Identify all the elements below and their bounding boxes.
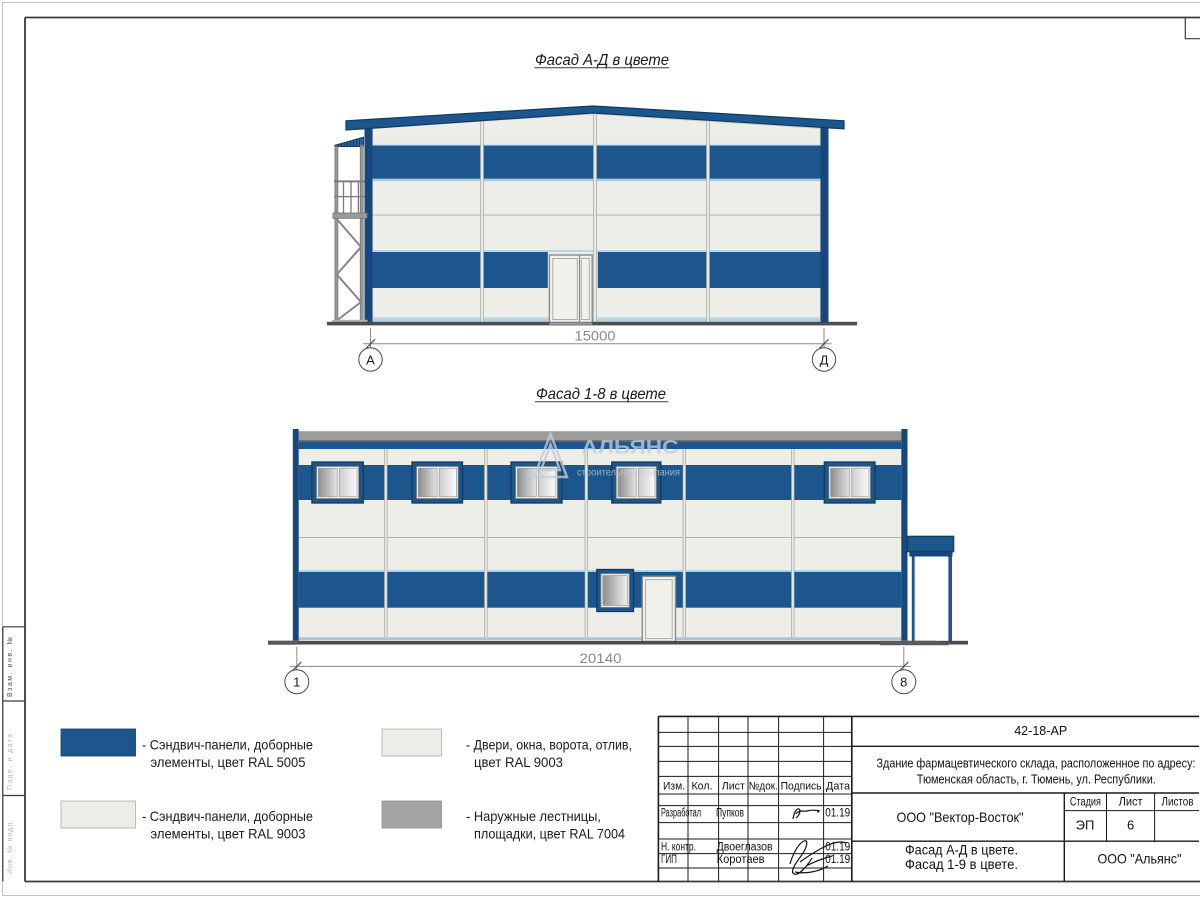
svg-text:Пупков: Пупков [716, 808, 744, 820]
svg-text:Листов: Листов [1162, 797, 1194, 809]
svg-text:01.19: 01.19 [825, 842, 850, 854]
svg-text:ООО "Альянс": ООО "Альянс" [1098, 850, 1182, 866]
svg-text:Лист: Лист [722, 781, 745, 793]
svg-text:элементы, цвет RAL 9003: элементы, цвет RAL 9003 [151, 826, 306, 842]
svg-text:Стадия: Стадия [1070, 797, 1101, 809]
svg-text:Коротаев: Коротаев [717, 854, 765, 866]
svg-text:Фасад А-Д в цвете.: Фасад А-Д в цвете. [905, 841, 1018, 857]
svg-text:Разработал: Разработал [661, 808, 701, 820]
svg-text:ООО "Вектор-Восток": ООО "Вектор-Восток" [897, 809, 1024, 825]
svg-text:8: 8 [900, 675, 907, 690]
svg-text:№док.: №док. [749, 781, 778, 793]
svg-text:ЭП: ЭП [1076, 818, 1095, 833]
svg-text:6: 6 [1127, 818, 1134, 833]
svg-text:строительная компания: строительная компания [577, 468, 680, 479]
svg-text:АЛЬЯНС: АЛЬЯНС [582, 437, 679, 458]
svg-text:Фасад А-Д в цвете: Фасад А-Д в цвете [535, 52, 669, 69]
svg-text:Подп. и дата: Подп. и дата [7, 734, 14, 790]
svg-text:01.19: 01.19 [825, 854, 850, 866]
svg-text:Тюменская область, г. Тюмень,: Тюменская область, г. Тюмень, ул. Респуб… [917, 771, 1156, 786]
svg-text:площадки, цвет RAL 7004: площадки, цвет RAL 7004 [474, 826, 625, 842]
svg-text:Подпись: Подпись [781, 781, 822, 793]
svg-text:А: А [366, 352, 375, 367]
svg-text:Здание фармацевтического склад: Здание фармацевтического склада, располо… [877, 756, 1196, 771]
svg-text:42-18-АР: 42-18-АР [1014, 723, 1067, 738]
svg-text:01.19: 01.19 [825, 808, 850, 820]
svg-text:Фасад 1-9 в цвете.: Фасад 1-9 в цвете. [905, 856, 1018, 872]
svg-text:Н. контр.: Н. контр. [661, 842, 696, 854]
svg-text:- Двери, окна, ворота, отлив,: - Двери, окна, ворота, отлив, [466, 737, 632, 753]
svg-text:Лист: Лист [1119, 797, 1144, 809]
svg-text:элементы, цвет RAL 5005: элементы, цвет RAL 5005 [151, 754, 306, 770]
svg-text:Двоеглазов: Двоеглазов [717, 842, 773, 854]
svg-text:- Сэндвич-панели, доборные: - Сэндвич-панели, доборные [142, 808, 313, 824]
svg-text:- Наружные лестницы,: - Наружные лестницы, [466, 808, 601, 824]
svg-text:1: 1 [293, 675, 300, 690]
svg-text:Дата: Дата [826, 781, 851, 793]
svg-text:Взам. инв. №: Взам. инв. № [7, 637, 14, 697]
svg-text:Фасад 1-8 в цвете: Фасад 1-8 в цвете [536, 386, 666, 403]
svg-text:Д: Д [820, 352, 829, 367]
svg-text:цвет RAL 9003: цвет RAL 9003 [474, 754, 563, 770]
svg-text:15000: 15000 [575, 328, 616, 344]
svg-text:20140: 20140 [580, 650, 622, 666]
svg-text:ГИП: ГИП [661, 854, 677, 866]
svg-text:Кол.: Кол. [692, 781, 713, 793]
svg-text:- Сэндвич-панели, доборные: - Сэндвич-панели, доборные [142, 737, 313, 753]
svg-text:Изм.: Изм. [663, 781, 685, 793]
svg-text:Инв. № подл.: Инв. № подл. [7, 820, 14, 874]
